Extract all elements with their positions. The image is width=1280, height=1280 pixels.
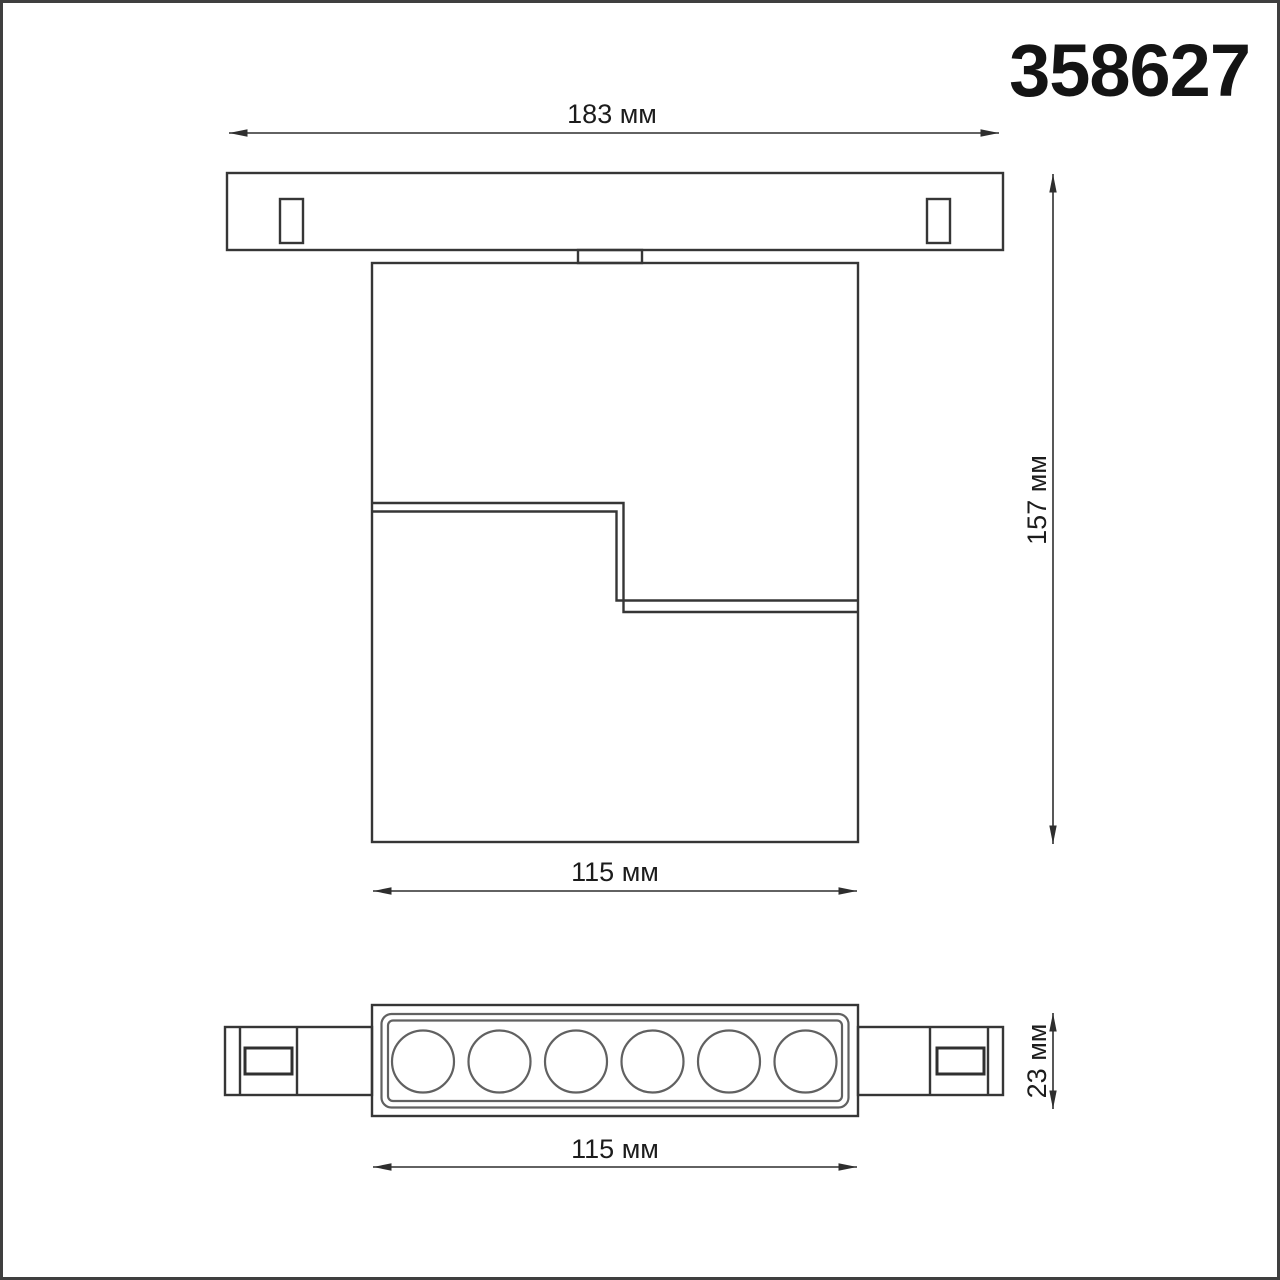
dim-label-body-width-bottom: 115 мм — [571, 1134, 659, 1164]
led-lens-4 — [622, 1031, 684, 1093]
dim-label-track-length: 183 мм — [567, 99, 657, 129]
dim-label-profile-height: 23 мм — [1022, 1024, 1052, 1099]
track-rail — [227, 173, 1003, 250]
tilt-joint-outer-line — [372, 503, 858, 612]
lens-bezel-outer — [382, 1014, 849, 1108]
lamp-body — [372, 263, 858, 842]
connector-band-left — [225, 1027, 372, 1095]
track-adapter — [578, 250, 642, 263]
track-slot-right — [927, 199, 950, 243]
tilt-joint-inner-line — [372, 512, 858, 601]
drawing-canvas: 358627 — [0, 0, 1280, 1280]
front-view — [227, 173, 1003, 842]
contact-block-right — [937, 1048, 984, 1074]
contact-block-left — [245, 1048, 292, 1074]
track-slot-left — [280, 199, 303, 243]
page-border — [2, 2, 1279, 1279]
led-lens-2 — [469, 1031, 531, 1093]
product-number: 358627 — [1009, 29, 1250, 112]
led-lens-3 — [545, 1031, 607, 1093]
led-lens-1 — [392, 1031, 454, 1093]
led-lens-5 — [698, 1031, 760, 1093]
dim-label-body-width: 115 мм — [571, 857, 659, 887]
fixture-body-bottom — [372, 1005, 858, 1116]
bottom-view — [225, 1005, 1003, 1116]
dim-label-overall-height: 157 мм — [1022, 455, 1052, 545]
led-lens-6 — [775, 1031, 837, 1093]
